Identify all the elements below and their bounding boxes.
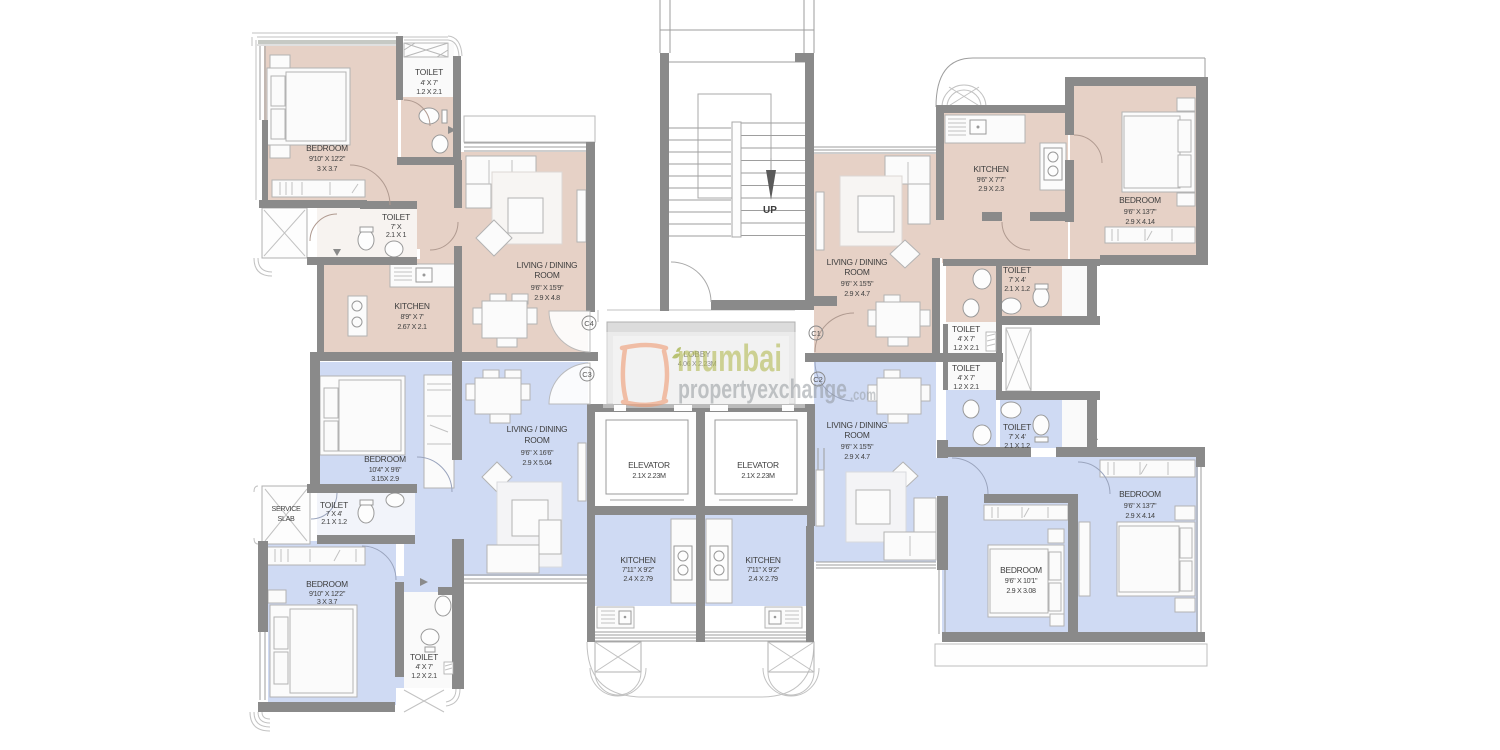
svg-text:2.9 X 5.04: 2.9 X 5.04 [522, 458, 552, 467]
svg-text:TOILET: TOILET [952, 324, 980, 334]
svg-text:BEDROOM: BEDROOM [1119, 195, 1161, 205]
svg-text:7' X 4': 7' X 4' [1008, 275, 1026, 284]
svg-text:ROOM: ROOM [534, 270, 559, 280]
svg-text:ELEVATOR: ELEVATOR [737, 460, 779, 470]
svg-text:C3: C3 [582, 370, 592, 379]
svg-text:TOILET: TOILET [410, 652, 438, 662]
svg-text:4' X 7': 4' X 7' [957, 373, 975, 382]
svg-text:KITCHEN: KITCHEN [620, 555, 656, 565]
svg-text:9'6" X 13'7": 9'6" X 13'7" [1124, 501, 1157, 510]
svg-text:9'6" X 15'5": 9'6" X 15'5" [841, 279, 874, 288]
svg-text:9'6" X 13'7": 9'6" X 13'7" [1124, 207, 1157, 216]
svg-text:2.1X 2.23M: 2.1X 2.23M [741, 471, 775, 480]
svg-text:2.1 X 1.2: 2.1 X 1.2 [321, 517, 347, 526]
svg-text:UP: UP [763, 205, 777, 216]
svg-text:9'6" X 7'7": 9'6" X 7'7" [977, 175, 1007, 184]
svg-text:2.1 X 1.2: 2.1 X 1.2 [1004, 441, 1030, 450]
svg-text:LIVING / DINING: LIVING / DINING [827, 257, 888, 267]
svg-text:BEDROOM: BEDROOM [1000, 565, 1042, 575]
svg-text:2.9 X 2.3: 2.9 X 2.3 [978, 184, 1004, 193]
svg-text:TOILET: TOILET [415, 67, 443, 77]
svg-text:LIVING / DINING: LIVING / DINING [507, 424, 568, 434]
svg-text:2.9 X 4.14: 2.9 X 4.14 [1125, 217, 1155, 226]
svg-text:8'9" X 7': 8'9" X 7' [401, 312, 425, 321]
svg-text:2.67 X 2.1: 2.67 X 2.1 [397, 322, 427, 331]
svg-text:2.1 X 1.2: 2.1 X 1.2 [1004, 284, 1030, 293]
svg-text:1.2 X 2.1: 1.2 X 2.1 [953, 343, 979, 352]
svg-text:7'11" X 9'2": 7'11" X 9'2" [747, 565, 780, 574]
svg-text:3.15X 2.9: 3.15X 2.9 [371, 474, 399, 483]
svg-text:ROOM: ROOM [844, 267, 869, 277]
svg-text:3 X 3.7: 3 X 3.7 [317, 164, 338, 173]
svg-text:ROOM: ROOM [524, 435, 549, 445]
svg-text:propertyexchange: propertyexchange [678, 374, 847, 404]
svg-text:2.9 X 4.14: 2.9 X 4.14 [1125, 511, 1155, 520]
svg-text:C1: C1 [811, 329, 821, 338]
svg-text:10'4" X 9'6": 10'4" X 9'6" [369, 465, 402, 474]
svg-text:9'6" X 15'5": 9'6" X 15'5" [841, 442, 874, 451]
svg-text:SERVICE: SERVICE [272, 504, 302, 513]
svg-text:3 X 3.7: 3 X 3.7 [317, 597, 338, 606]
svg-text:4' X 7': 4' X 7' [420, 78, 438, 87]
svg-text:TOILET: TOILET [1003, 422, 1031, 432]
svg-text:KITCHEN: KITCHEN [973, 164, 1009, 174]
svg-text:2.1 X 1: 2.1 X 1 [386, 230, 407, 239]
svg-text:2.4 X 2.79: 2.4 X 2.79 [748, 574, 778, 583]
svg-text:9'6" X 10'1": 9'6" X 10'1" [1005, 576, 1038, 585]
svg-text:BEDROOM: BEDROOM [306, 143, 348, 153]
svg-text:ROOM: ROOM [844, 430, 869, 440]
svg-text:BEDROOM: BEDROOM [306, 579, 348, 589]
svg-text:ELEVATOR: ELEVATOR [628, 460, 670, 470]
svg-text:2.9 X 3.08: 2.9 X 3.08 [1006, 586, 1036, 595]
svg-text:7' X 4': 7' X 4' [1008, 432, 1026, 441]
svg-text:BEDROOM: BEDROOM [1119, 489, 1161, 499]
svg-text:C4: C4 [584, 319, 594, 328]
svg-text:2.4 X 2.79: 2.4 X 2.79 [623, 574, 653, 583]
svg-text:KITCHEN: KITCHEN [394, 301, 430, 311]
svg-text:LIVING / DINING: LIVING / DINING [517, 260, 578, 270]
svg-text:9'6" X 15'9": 9'6" X 15'9" [531, 283, 564, 292]
svg-text:2.9 X 4.8: 2.9 X 4.8 [534, 293, 560, 302]
svg-text:TOILET: TOILET [382, 212, 410, 222]
svg-text:7'11" X 9'2": 7'11" X 9'2" [622, 565, 655, 574]
svg-text:2.1X 2.23M: 2.1X 2.23M [632, 471, 666, 480]
svg-text:2.9 X 4.7: 2.9 X 4.7 [844, 452, 870, 461]
svg-text:2.9 X 4.7: 2.9 X 4.7 [844, 289, 870, 298]
svg-text:1.2 X 2.1: 1.2 X 2.1 [411, 671, 437, 680]
svg-text:TOILET: TOILET [952, 363, 980, 373]
svg-text:9'10" X 12'2": 9'10" X 12'2" [309, 154, 346, 163]
svg-text:4' X 7': 4' X 7' [957, 334, 975, 343]
svg-text:9'6" X 16'6": 9'6" X 16'6" [521, 448, 554, 457]
svg-text:BEDROOM: BEDROOM [364, 454, 406, 464]
svg-text:.com: .com [850, 387, 876, 404]
svg-text:1.2 X 2.1: 1.2 X 2.1 [953, 382, 979, 391]
svg-text:1.2 X 2.1: 1.2 X 2.1 [416, 87, 442, 96]
svg-text:SLAB: SLAB [278, 514, 296, 523]
svg-text:KITCHEN: KITCHEN [745, 555, 781, 565]
svg-text:TOILET: TOILET [1003, 265, 1031, 275]
svg-text:LIVING / DINING: LIVING / DINING [827, 420, 888, 430]
svg-text:4' X 7': 4' X 7' [415, 662, 433, 671]
